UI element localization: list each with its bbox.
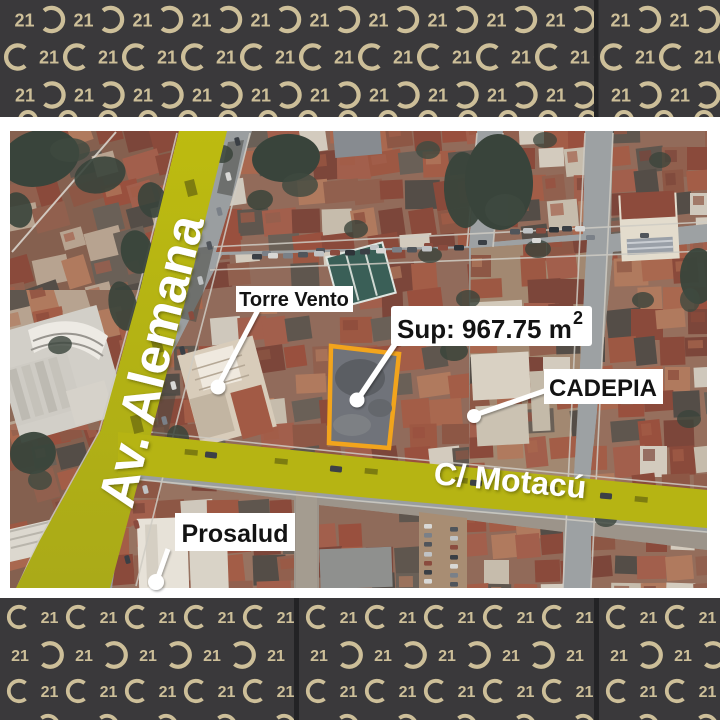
svg-text:21: 21 bbox=[570, 48, 590, 68]
svg-text:21: 21 bbox=[640, 610, 658, 627]
svg-text:21: 21 bbox=[669, 11, 689, 31]
svg-text:21: 21 bbox=[267, 648, 285, 665]
svg-text:21: 21 bbox=[502, 648, 520, 665]
svg-text:21: 21 bbox=[399, 610, 417, 627]
svg-text:21: 21 bbox=[218, 610, 236, 627]
svg-text:21: 21 bbox=[139, 648, 157, 665]
svg-text:21: 21 bbox=[511, 48, 531, 68]
svg-text:21: 21 bbox=[157, 48, 177, 68]
svg-text:21: 21 bbox=[438, 648, 456, 665]
svg-text:21: 21 bbox=[428, 86, 448, 106]
svg-text:21: 21 bbox=[277, 610, 295, 627]
svg-text:21: 21 bbox=[310, 86, 330, 106]
svg-text:Torre Vento: Torre Vento bbox=[239, 289, 349, 311]
svg-text:Sup: 967.75 m: Sup: 967.75 m bbox=[397, 314, 572, 344]
svg-text:21: 21 bbox=[458, 610, 476, 627]
svg-text:21: 21 bbox=[98, 48, 118, 68]
svg-text:21: 21 bbox=[310, 648, 328, 665]
svg-text:21: 21 bbox=[576, 684, 594, 701]
svg-text:21: 21 bbox=[517, 684, 535, 701]
svg-text:21: 21 bbox=[75, 648, 93, 665]
svg-text:21: 21 bbox=[486, 11, 506, 31]
svg-text:21: 21 bbox=[275, 48, 295, 68]
svg-text:21: 21 bbox=[610, 648, 628, 665]
svg-text:Prosalud: Prosalud bbox=[182, 520, 289, 548]
svg-text:21: 21 bbox=[133, 86, 153, 106]
svg-text:21: 21 bbox=[192, 86, 212, 106]
svg-text:21: 21 bbox=[39, 48, 59, 68]
svg-text:21: 21 bbox=[309, 11, 329, 31]
svg-text:21: 21 bbox=[576, 610, 594, 627]
svg-text:21: 21 bbox=[277, 684, 295, 701]
svg-text:21: 21 bbox=[635, 48, 655, 68]
svg-text:21: 21 bbox=[427, 11, 447, 31]
svg-text:21: 21 bbox=[699, 684, 717, 701]
svg-text:21: 21 bbox=[159, 610, 177, 627]
svg-text:21: 21 bbox=[251, 86, 271, 106]
svg-text:21: 21 bbox=[611, 86, 631, 106]
svg-text:21: 21 bbox=[41, 610, 59, 627]
svg-text:21: 21 bbox=[100, 610, 118, 627]
svg-text:21: 21 bbox=[191, 11, 211, 31]
svg-text:21: 21 bbox=[487, 86, 507, 106]
svg-text:21: 21 bbox=[610, 11, 630, 31]
svg-text:21: 21 bbox=[100, 684, 118, 701]
svg-text:21: 21 bbox=[546, 86, 566, 106]
svg-text:21: 21 bbox=[640, 684, 658, 701]
svg-text:21: 21 bbox=[452, 48, 472, 68]
svg-text:21: 21 bbox=[218, 684, 236, 701]
svg-text:21: 21 bbox=[374, 648, 392, 665]
svg-text:21: 21 bbox=[132, 11, 152, 31]
svg-text:21: 21 bbox=[74, 86, 94, 106]
svg-text:21: 21 bbox=[674, 648, 692, 665]
svg-text:21: 21 bbox=[393, 48, 413, 68]
svg-text:21: 21 bbox=[670, 86, 690, 106]
svg-text:21: 21 bbox=[458, 684, 476, 701]
svg-text:21: 21 bbox=[368, 11, 388, 31]
svg-text:21: 21 bbox=[694, 48, 714, 68]
svg-text:21: 21 bbox=[41, 684, 59, 701]
svg-text:21: 21 bbox=[369, 86, 389, 106]
svg-text:21: 21 bbox=[14, 11, 34, 31]
svg-text:CADEPIA: CADEPIA bbox=[549, 375, 657, 402]
svg-text:21: 21 bbox=[159, 684, 177, 701]
svg-text:21: 21 bbox=[11, 648, 29, 665]
svg-text:21: 21 bbox=[73, 11, 93, 31]
svg-text:21: 21 bbox=[517, 610, 535, 627]
svg-text:2: 2 bbox=[573, 308, 583, 328]
svg-text:21: 21 bbox=[334, 48, 354, 68]
svg-text:21: 21 bbox=[250, 11, 270, 31]
svg-text:21: 21 bbox=[340, 684, 358, 701]
svg-text:21: 21 bbox=[340, 610, 358, 627]
svg-text:21: 21 bbox=[699, 610, 717, 627]
svg-text:21: 21 bbox=[15, 86, 35, 106]
svg-text:21: 21 bbox=[216, 48, 236, 68]
svg-text:21: 21 bbox=[203, 648, 221, 665]
svg-text:21: 21 bbox=[545, 11, 565, 31]
svg-text:21: 21 bbox=[566, 648, 584, 665]
svg-text:21: 21 bbox=[399, 684, 417, 701]
